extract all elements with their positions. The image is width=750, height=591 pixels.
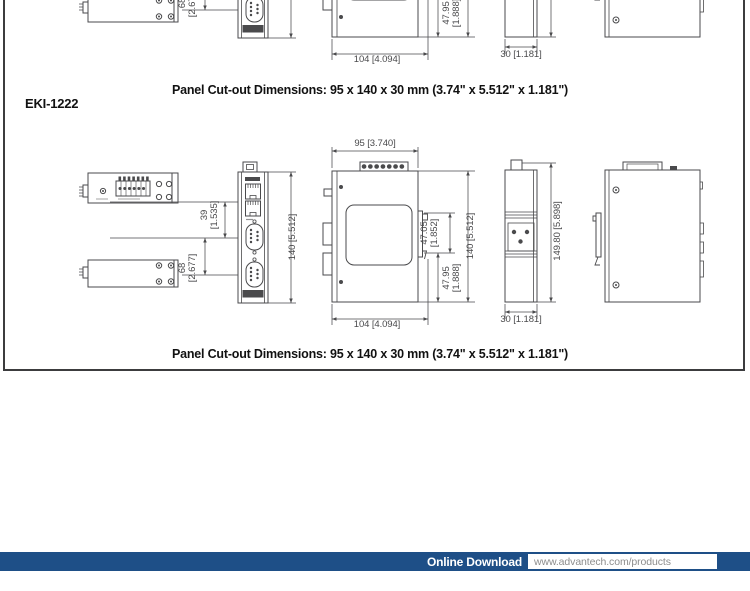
dim-clip-b-label: 47.95[1.888] <box>442 256 464 300</box>
dim-offset-b-label: 68[2.677] <box>178 248 200 288</box>
panel-cutout-caption-bottom: Panel Cut-out Dimensions: 95 x 140 x 30 … <box>0 347 740 361</box>
dim-clip-a-in: [1.852] <box>430 211 440 255</box>
dim-height-front-label: 140 [5.512] <box>288 197 300 277</box>
dim-offset-b-label: 68[2.677] <box>178 0 200 23</box>
dim-width-overall-label: 104 [4.094] <box>317 55 437 65</box>
dim-height-side-label: 140 [5.512] <box>466 196 478 276</box>
dim-height-overall-label: 149.80 [5.898] <box>553 0 565 16</box>
footer-bar: Online Download www.advantech.com/produc… <box>0 552 750 571</box>
dim-depth-label: 30 [1.181] <box>481 50 561 60</box>
dim-offset-b-in: [2.677] <box>188 248 198 288</box>
dim-height-overall-label: 149.80 [5.898] <box>553 181 565 281</box>
dim-height-front-label: 140 [5.512] <box>288 0 300 12</box>
dim-width-top-label: 95 [3.740] <box>335 139 415 149</box>
dimension-drawing-svg <box>60 135 750 335</box>
dim-clip-b-label: 47.95[1.888] <box>442 0 464 35</box>
dim-offset-b-in: [2.677] <box>188 0 198 23</box>
model-heading: EKI-1222 <box>25 96 78 111</box>
online-download-label: Online Download <box>427 555 522 569</box>
panel-cutout-caption-top: Panel Cut-out Dimensions: 95 x 140 x 30 … <box>0 83 740 97</box>
dimension-drawing-set-top: 95 [3.740] 104 [4.094] 30 [1.181] 140 [5… <box>60 0 750 70</box>
dim-width-overall-label: 104 [4.094] <box>317 320 437 330</box>
datasheet-page: 95 [3.740] 104 [4.094] 30 [1.181] 140 [5… <box>0 0 750 591</box>
download-url[interactable]: www.advantech.com/products <box>534 556 671 568</box>
dim-offset-a-label: 39[1.535] <box>200 195 222 235</box>
dim-clip-b-in: [1.888] <box>452 256 462 300</box>
download-url-box[interactable]: www.advantech.com/products <box>528 554 717 569</box>
dim-offset-a-in: [1.535] <box>210 195 220 235</box>
dim-height-side-label: 140 [5.512] <box>466 0 478 11</box>
dim-depth-label: 30 [1.181] <box>481 315 561 325</box>
dim-clip-b-in: [1.888] <box>452 0 462 35</box>
dimension-drawing-set-eki1222: 95 [3.740] 104 [4.094] 30 [1.181] 140 [5… <box>60 135 750 335</box>
dim-clip-a-label: 47.05[1.852] <box>420 211 442 255</box>
